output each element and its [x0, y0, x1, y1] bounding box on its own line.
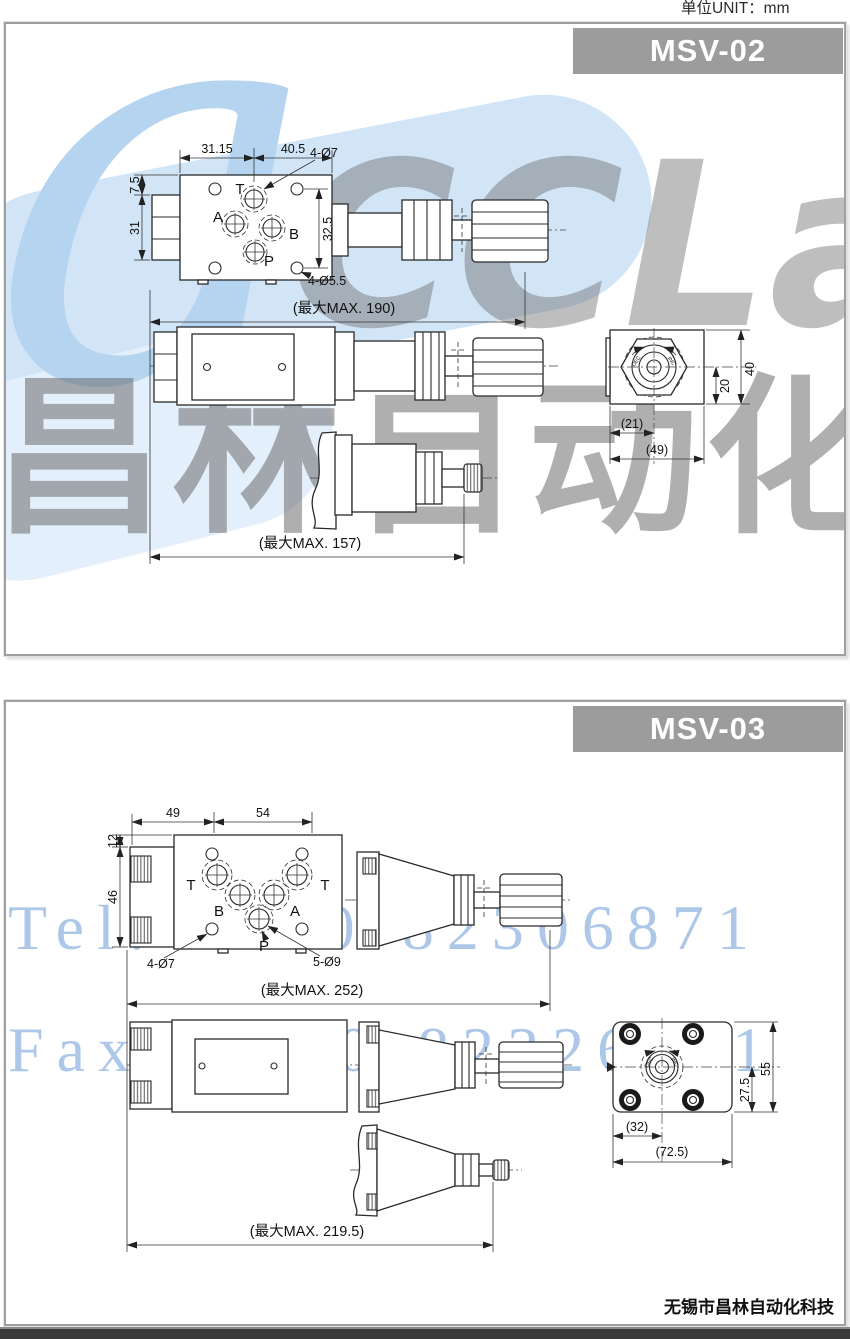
panel-msv03: Tel: 0510-82306871 Fax: 0510-82326771	[4, 700, 846, 1326]
msv02-valve-knob-top	[332, 200, 566, 262]
dim-20: 20	[718, 379, 732, 393]
dim-max-157: (最大MAX. 157)	[259, 535, 361, 552]
dim-54: 54	[256, 806, 270, 820]
msv03-end-view: DEC INC 27.5 55 (32) (72.5)	[606, 1018, 780, 1168]
msv03-drawing: T B A T P 49 54 12 46 4-Ø7 5-Ø9	[10, 700, 834, 1326]
dim-port-holes-03: 5-Ø9	[313, 955, 341, 969]
dim-mount-holes-03: 4-Ø7	[147, 957, 175, 971]
dim-72-5: (72.5)	[656, 1145, 689, 1159]
dim-7-5: 7.5	[128, 176, 142, 193]
dim-max-190: (最大MAX. 190)	[293, 300, 395, 317]
port-label-b: B	[214, 903, 224, 920]
dim-49: (49)	[646, 443, 668, 457]
dim-12: 12	[106, 834, 120, 848]
model-header-msv02: MSV-02	[573, 28, 843, 74]
msv03-side-view	[127, 1020, 572, 1112]
msv02-max190-dim: (最大MAX. 190)	[150, 272, 525, 564]
port-label-t: T	[235, 181, 244, 198]
msv03-screw-view: (最大MAX. 219.5)	[127, 1125, 522, 1252]
dim-40: 40	[743, 362, 757, 376]
dim-max-219-5: (最大MAX. 219.5)	[250, 1223, 364, 1240]
port-label-b: B	[289, 226, 299, 243]
port-label-p: P	[259, 938, 269, 955]
msv03-port-a	[259, 880, 289, 910]
msv02-top-view: T A B P 31.15 40.5 4-Ø7 7.5 31 32.5 4-Ø5…	[128, 142, 346, 288]
dim-31: 31	[128, 221, 142, 235]
msv03-top-view: T B A T P 49 54 12 46 4-Ø7 5-Ø9	[106, 806, 342, 971]
msv03-port-b	[225, 880, 255, 910]
msv02-side-view	[150, 327, 558, 405]
dim-mount-holes: 4-Ø5.5	[308, 274, 346, 288]
port-label-a: A	[290, 903, 300, 920]
port-label-t1: T	[186, 877, 195, 894]
unit-label: 单位UNIT：mm	[681, 0, 790, 18]
dim-46: 46	[106, 890, 120, 904]
model-header-msv03: MSV-03	[573, 706, 843, 752]
msv03-port-t2	[282, 860, 312, 890]
dim-27-5: 27.5	[738, 1078, 752, 1102]
port-label-p: P	[264, 253, 274, 270]
footer-company: 无锡市昌林自动化科技	[664, 1293, 834, 1318]
dim-40-5: 40.5	[281, 142, 305, 156]
bottom-bar	[0, 1327, 850, 1339]
dim-31-15: 31.15	[201, 142, 232, 156]
dim-21: (21)	[621, 417, 643, 431]
port-label-a: A	[213, 209, 223, 226]
msv02-screw-view: (最大MAX. 157)	[150, 432, 498, 564]
port-label-t2: T	[320, 877, 329, 894]
datasheet-page: { "page": { "unit_label": "单位UNIT：mm", "…	[0, 0, 850, 1337]
msv03-port-t1	[202, 860, 232, 890]
msv02-end-view: DEC INC 20 40 (21) (49)	[606, 328, 757, 464]
msv02-drawing: T A B P 31.15 40.5 4-Ø7 7.5 31 32.5 4-Ø5…	[10, 32, 834, 632]
msv03-valve-knob-top	[345, 852, 572, 949]
dim-max-252: (最大MAX. 252)	[261, 982, 363, 999]
dim-49: 49	[166, 806, 180, 820]
dim-port-holes: 4-Ø7	[310, 146, 338, 160]
dim-55: 55	[759, 1062, 773, 1076]
panel-msv02: a CCLair 昌林自动化	[4, 22, 846, 656]
dim-32: (32)	[626, 1120, 648, 1134]
